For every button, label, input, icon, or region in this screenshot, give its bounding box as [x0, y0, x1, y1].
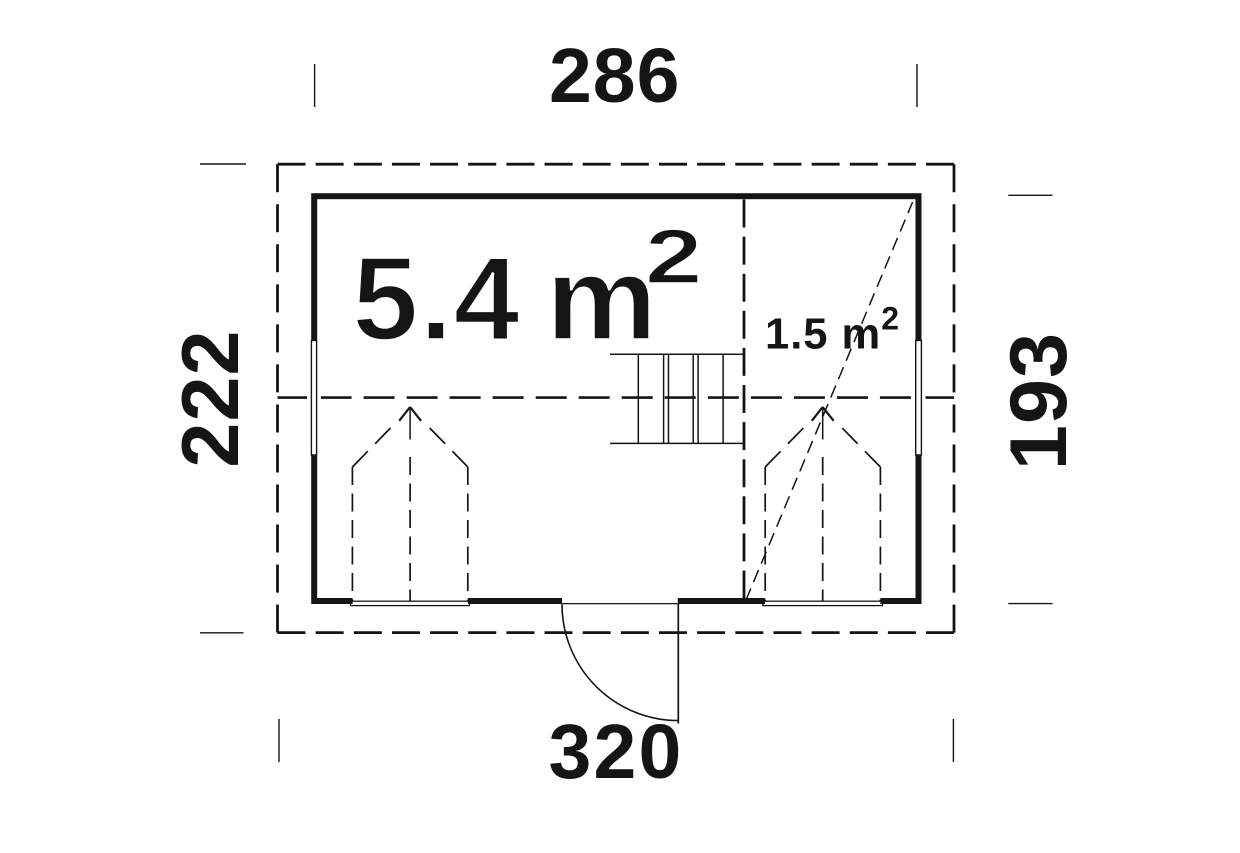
- svg-text:320: 320: [548, 709, 683, 795]
- svg-text:m: m: [546, 233, 658, 366]
- svg-text:1.5 m2: 1.5 m2: [765, 301, 900, 359]
- svg-text:286: 286: [549, 33, 680, 119]
- svg-text:222: 222: [166, 329, 256, 467]
- svg-text:193: 193: [994, 332, 1084, 470]
- svg-text:2: 2: [645, 214, 703, 300]
- svg-text:5.4: 5.4: [352, 233, 520, 366]
